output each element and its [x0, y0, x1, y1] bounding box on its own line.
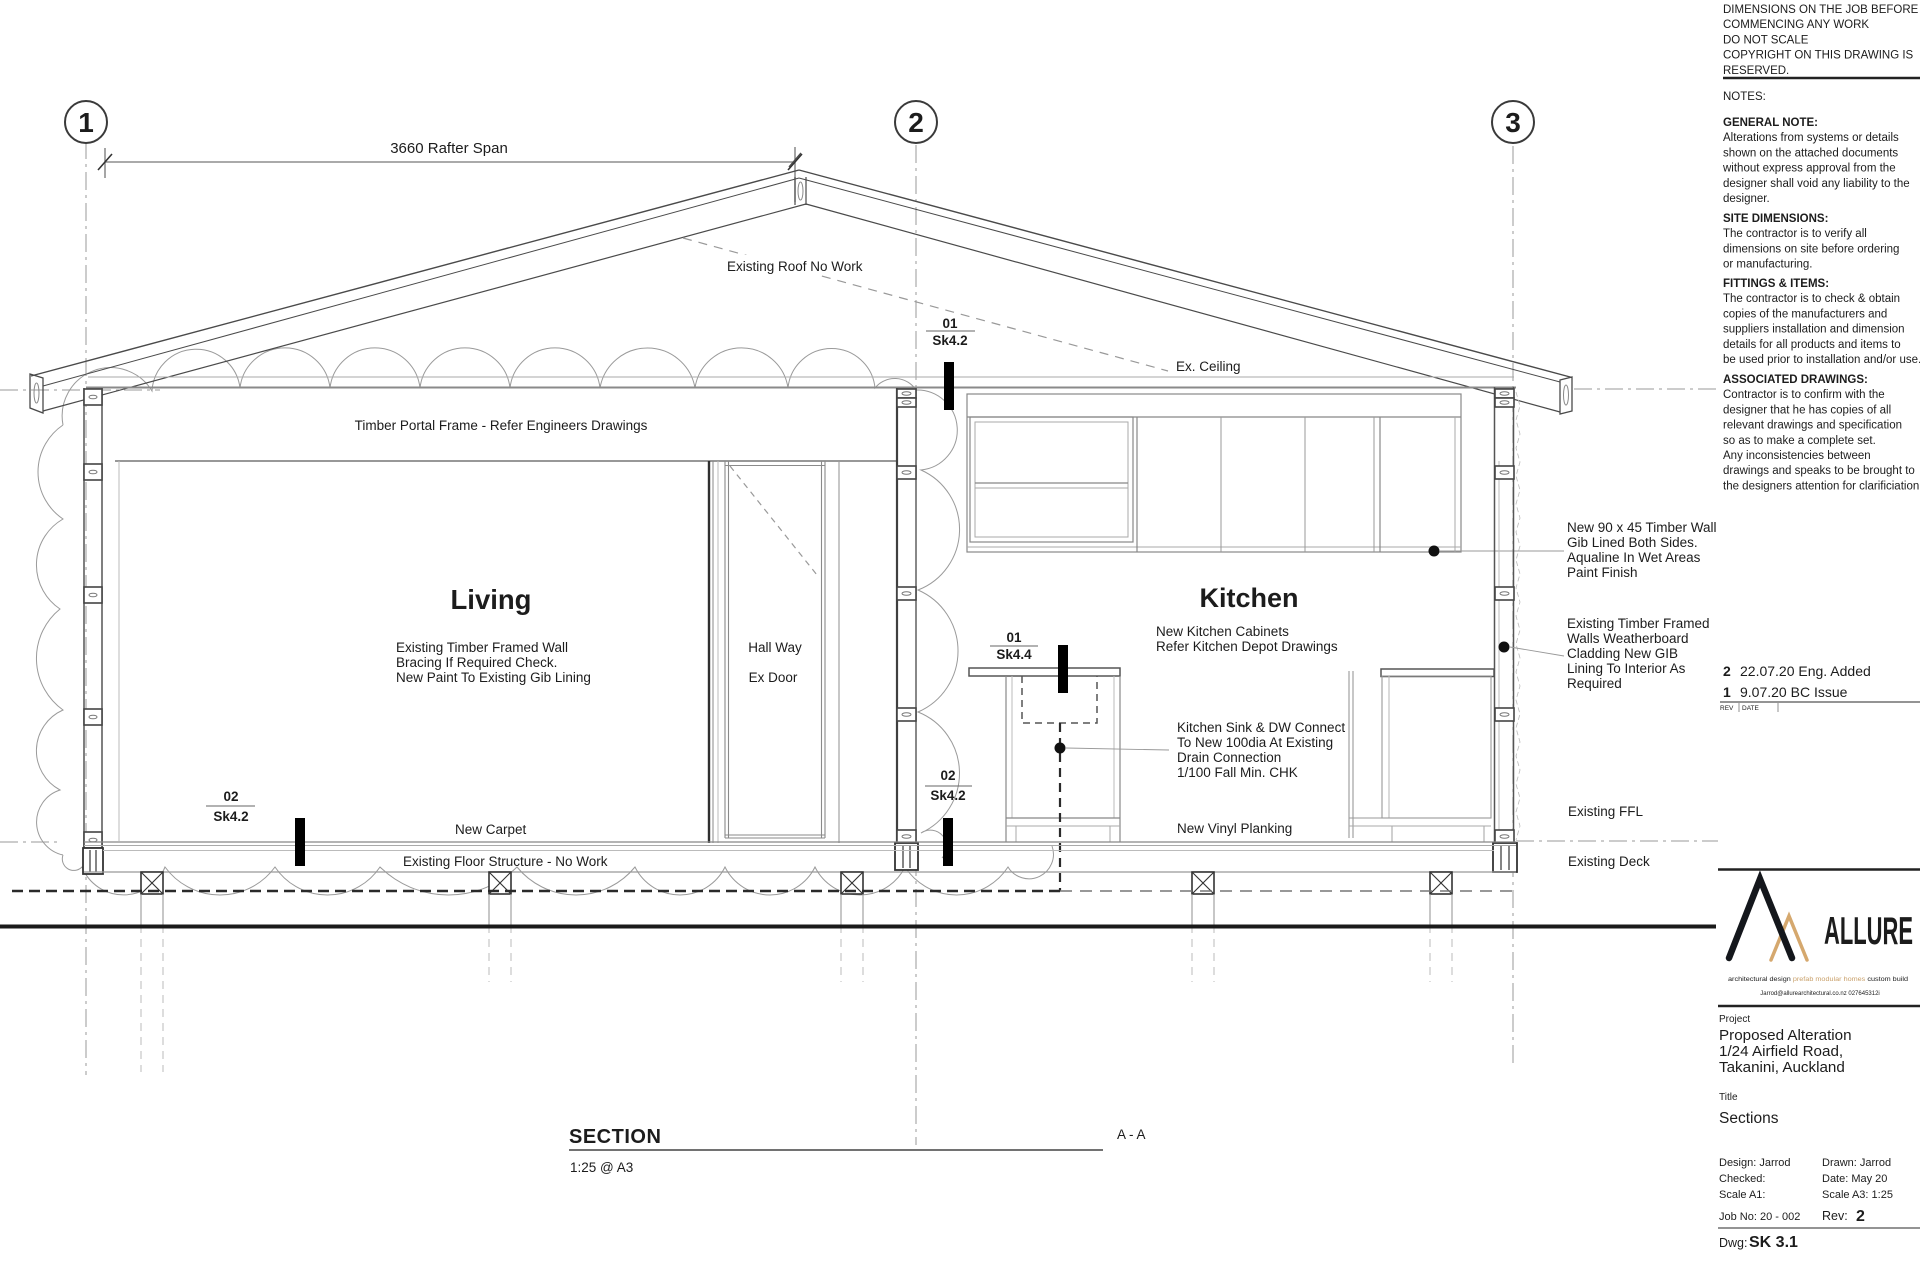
- svg-text:02: 02: [223, 789, 238, 804]
- svg-text:2: 2: [1856, 1208, 1865, 1225]
- svg-text:New Kitchen Cabinets: New Kitchen Cabinets: [1156, 624, 1289, 639]
- svg-text:Any inconsistencies between: Any inconsistencies between: [1723, 450, 1871, 462]
- svg-text:DO NOT SCALE: DO NOT SCALE: [1723, 34, 1809, 46]
- svg-text:Project: Project: [1719, 1014, 1750, 1025]
- svg-text:without express approval from: without express approval from the: [1722, 163, 1896, 175]
- svg-text:REV: REV: [1720, 705, 1734, 712]
- svg-text:Refer Kitchen Depot Drawings: Refer Kitchen Depot Drawings: [1156, 639, 1338, 654]
- svg-text:designer that he has copies of: designer that he has copies of all: [1723, 404, 1891, 416]
- svg-text:Sections: Sections: [1719, 1110, 1779, 1127]
- svg-text:Jarrod@allurearchitectural.co.: Jarrod@allurearchitectural.co.nz 0276453…: [1760, 991, 1880, 997]
- svg-text:3: 3: [1505, 107, 1521, 138]
- svg-text:Date: May 20: Date: May 20: [1822, 1173, 1887, 1185]
- svg-text:2: 2: [908, 107, 924, 138]
- svg-text:01: 01: [1006, 630, 1022, 645]
- svg-text:Ex Door: Ex Door: [749, 670, 798, 685]
- svg-text:Aqualine In Wet Areas: Aqualine In Wet Areas: [1567, 550, 1701, 565]
- svg-text:Existing Timber Framed Wall: Existing Timber Framed Wall: [396, 640, 568, 655]
- svg-text:Lining To Interior As: Lining To Interior As: [1567, 661, 1686, 676]
- svg-text:Takanini, Auckland: Takanini, Auckland: [1719, 1059, 1845, 1076]
- svg-text:SECTION: SECTION: [569, 1126, 661, 1148]
- svg-text:Checked:: Checked:: [1719, 1173, 1765, 1185]
- svg-text:ASSOCIATED DRAWINGS:: ASSOCIATED DRAWINGS:: [1723, 374, 1868, 386]
- svg-text:Timber Portal Frame - Refer En: Timber Portal Frame - Refer Engineers Dr…: [355, 418, 648, 433]
- svg-text:Sk4.4: Sk4.4: [996, 647, 1032, 662]
- svg-text:designer.: designer.: [1723, 193, 1770, 205]
- svg-text:Required: Required: [1567, 676, 1622, 691]
- svg-text:New Carpet: New Carpet: [455, 822, 527, 837]
- svg-text:SITE DIMENSIONS:: SITE DIMENSIONS:: [1723, 213, 1828, 225]
- svg-text:DIMENSIONS ON THE JOB BEFORE: DIMENSIONS ON THE JOB BEFORE: [1723, 4, 1919, 16]
- svg-text:Gib Lined Both Sides.: Gib Lined Both Sides.: [1567, 535, 1698, 550]
- svg-text:1/100 Fall Min. CHK: 1/100 Fall Min. CHK: [1177, 765, 1298, 780]
- svg-text:3660 Rafter Span: 3660 Rafter Span: [390, 140, 508, 157]
- svg-text:dimensions on site before orde: dimensions on site before ordering: [1723, 243, 1899, 255]
- svg-text:02: 02: [940, 768, 955, 783]
- svg-text:New Paint To Existing Gib Lini: New Paint To Existing Gib Lining: [396, 670, 591, 685]
- svg-text:To New 100dia At Existing: To New 100dia At Existing: [1177, 735, 1333, 750]
- svg-text:Hall Way: Hall Way: [748, 640, 802, 655]
- svg-text:Title: Title: [1719, 1092, 1738, 1103]
- svg-text:GENERAL NOTE:: GENERAL NOTE:: [1723, 117, 1818, 129]
- svg-text:NOTES:: NOTES:: [1723, 91, 1766, 103]
- svg-text:SK 3.1: SK 3.1: [1749, 1234, 1798, 1251]
- svg-text:COMMENCING ANY WORK: COMMENCING ANY WORK: [1723, 19, 1869, 31]
- svg-text:The contractor is to check & o: The contractor is to check & obtain: [1723, 293, 1900, 305]
- svg-text:Existing Roof No Work: Existing Roof No Work: [727, 259, 863, 274]
- svg-text:1/24 Airfield Road,: 1/24 Airfield Road,: [1719, 1043, 1843, 1060]
- svg-text:Existing Floor Structure - No: Existing Floor Structure - No Work: [403, 854, 608, 869]
- svg-text:New 90 x 45 Timber Wall: New 90 x 45 Timber Wall: [1567, 520, 1717, 535]
- svg-text:The contractor is to verify a: The contractor is to verify all: [1723, 228, 1867, 240]
- svg-text:copies of the manufacturers an: copies of the manufacturers and: [1723, 308, 1887, 320]
- svg-text:Existing Deck: Existing Deck: [1568, 854, 1650, 869]
- svg-text:details for all products and i: details for all products and items to: [1723, 339, 1901, 351]
- svg-text:1:25 @ A3: 1:25 @ A3: [570, 1160, 633, 1175]
- svg-text:the designers attention for cl: the designers attention for clarificiati…: [1723, 480, 1919, 492]
- svg-text:so as to make a complete set.: so as to make a complete set.: [1723, 435, 1876, 447]
- svg-text:be used prior to installation: be used prior to installation and/or use…: [1723, 354, 1920, 366]
- svg-text:RESERVED.: RESERVED.: [1723, 65, 1789, 77]
- svg-text:Ex. Ceiling: Ex. Ceiling: [1176, 359, 1241, 374]
- svg-text:Paint Finish: Paint Finish: [1567, 565, 1638, 580]
- svg-text:Existing Timber Framed: Existing Timber Framed: [1567, 616, 1710, 631]
- svg-text:New Vinyl Planking: New Vinyl Planking: [1177, 821, 1292, 836]
- svg-text:Existing FFL: Existing FFL: [1568, 804, 1644, 819]
- svg-text:Cladding New GIB: Cladding New GIB: [1567, 646, 1678, 661]
- svg-text:ALLURE: ALLURE: [1824, 910, 1913, 953]
- svg-text:2: 2: [1723, 663, 1731, 679]
- svg-text:Drain Connection: Drain Connection: [1177, 750, 1281, 765]
- svg-text:COPYRIGHT ON THIS DRAWING IS: COPYRIGHT ON THIS DRAWING IS: [1723, 50, 1914, 62]
- svg-text:FITTINGS & ITEMS:: FITTINGS & ITEMS:: [1723, 278, 1829, 290]
- svg-text:designer shall void any liabil: designer shall void any liability to the: [1723, 178, 1910, 190]
- svg-text:suppliers installation and dim: suppliers installation and dimension: [1723, 324, 1905, 336]
- svg-text:1: 1: [1723, 684, 1731, 700]
- svg-text:Bracing If Required Check.: Bracing If Required Check.: [396, 655, 557, 670]
- svg-text:Job No: 20 - 002: Job No: 20 - 002: [1719, 1211, 1800, 1223]
- svg-text:Alterations from systems or de: Alterations from systems or details: [1723, 132, 1899, 144]
- svg-text:relevant drawings and specific: relevant drawings and specification: [1723, 420, 1902, 432]
- svg-text:Kitchen Sink & DW Connect: Kitchen Sink & DW Connect: [1177, 720, 1345, 735]
- svg-text:shown on the attached document: shown on the attached documents: [1723, 147, 1898, 159]
- svg-text:Sk4.2: Sk4.2: [932, 333, 967, 348]
- svg-text:Contractor is to confirm with: Contractor is to confirm with the: [1723, 389, 1885, 401]
- svg-text:Proposed Alteration: Proposed Alteration: [1719, 1027, 1852, 1044]
- svg-text:01: 01: [942, 316, 958, 331]
- svg-text:Dwg:: Dwg:: [1719, 1236, 1747, 1250]
- svg-text:22.07.20 Eng. Added: 22.07.20 Eng. Added: [1740, 663, 1871, 679]
- svg-text:DATE: DATE: [1742, 705, 1760, 712]
- svg-text:drawings and speaks to be brou: drawings and speaks to be brought to: [1723, 465, 1915, 477]
- svg-text:9.07.20 BC Issue: 9.07.20 BC Issue: [1740, 684, 1848, 700]
- svg-text:Walls Weatherboard: Walls Weatherboard: [1567, 631, 1689, 646]
- svg-text:Scale A3: 1:25: Scale A3: 1:25: [1822, 1189, 1893, 1201]
- svg-text:Design: Jarrod: Design: Jarrod: [1719, 1157, 1791, 1169]
- svg-text:1: 1: [78, 107, 94, 138]
- svg-text:Kitchen: Kitchen: [1199, 583, 1298, 613]
- svg-text:or manufacturing.: or manufacturing.: [1723, 259, 1813, 271]
- svg-text:THE CONTRACTOR IS TO CHECK ALL: THE CONTRACTOR IS TO CHECK ALL: [1723, 0, 1920, 1]
- svg-text:A - A: A - A: [1117, 1127, 1146, 1142]
- svg-text:Rev:: Rev:: [1822, 1209, 1848, 1223]
- svg-text:Drawn: Jarrod: Drawn: Jarrod: [1822, 1157, 1891, 1169]
- svg-text:Living: Living: [451, 584, 532, 615]
- svg-text:Sk4.2: Sk4.2: [930, 788, 965, 803]
- svg-text:Sk4.2: Sk4.2: [213, 809, 248, 824]
- svg-text:architectural design prefab mo: architectural design prefab modular home…: [1728, 976, 1908, 983]
- svg-text:Scale A1:: Scale A1:: [1719, 1189, 1765, 1201]
